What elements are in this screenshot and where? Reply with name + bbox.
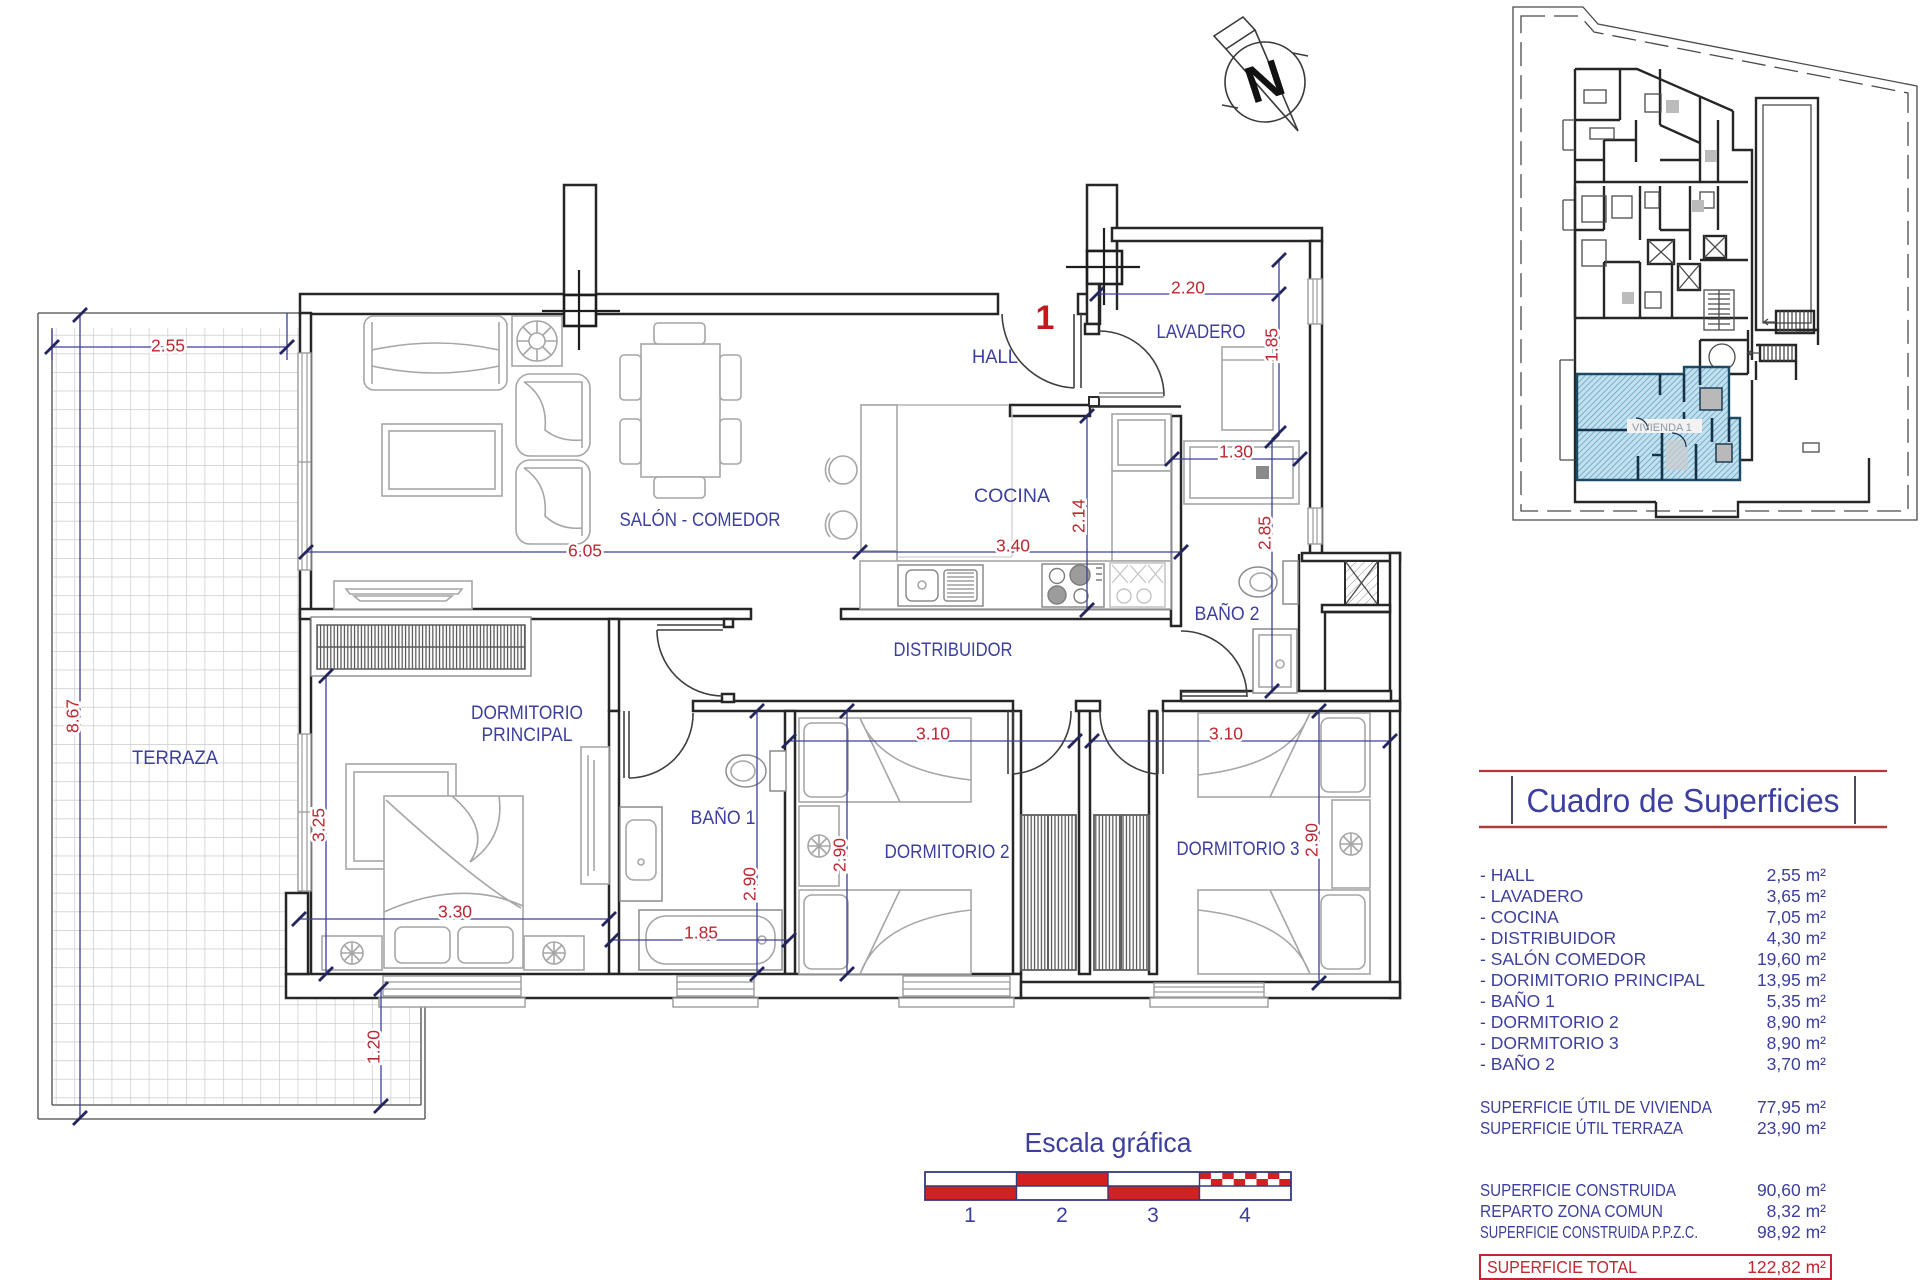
- svg-text:98,92 m²: 98,92 m²: [1757, 1222, 1826, 1242]
- svg-text:Cuadro de Superficies: Cuadro de Superficies: [1527, 782, 1840, 819]
- svg-text:DISTRIBUIDOR: DISTRIBUIDOR: [894, 639, 1013, 661]
- svg-text:3,65 m²: 3,65 m²: [1767, 886, 1826, 906]
- svg-text:DORMITORIO 2: DORMITORIO 2: [885, 841, 1010, 863]
- svg-text:6.05: 6.05: [568, 541, 602, 561]
- svg-text:3.10: 3.10: [916, 724, 950, 744]
- svg-text:2: 2: [1056, 1204, 1068, 1227]
- svg-text:3.25: 3.25: [309, 808, 329, 842]
- svg-text:4,30 m²: 4,30 m²: [1767, 928, 1826, 948]
- svg-text:7,05 m²: 7,05 m²: [1767, 907, 1826, 927]
- svg-text:122,82 m²: 122,82 m²: [1747, 1257, 1826, 1277]
- svg-text:HALL: HALL: [972, 346, 1018, 368]
- svg-text:- DORMITORIO 2: - DORMITORIO 2: [1480, 1012, 1619, 1032]
- svg-text:8,90 m²: 8,90 m²: [1767, 1033, 1826, 1053]
- svg-text:SUPERFICIE CONSTRUIDA P.P.Z.C.: SUPERFICIE CONSTRUIDA P.P.Z.C.: [1480, 1222, 1698, 1242]
- svg-text:2.90: 2.90: [1302, 823, 1322, 857]
- svg-text:2.55: 2.55: [151, 336, 185, 356]
- svg-text:8.67: 8.67: [63, 699, 83, 733]
- svg-text:LAVADERO: LAVADERO: [1157, 321, 1246, 343]
- svg-text:- BAÑO 1: - BAÑO 1: [1480, 990, 1555, 1011]
- svg-text:1.30: 1.30: [1219, 442, 1253, 462]
- svg-text:3: 3: [1147, 1204, 1159, 1227]
- svg-text:COCINA: COCINA: [974, 485, 1050, 507]
- svg-text:- LAVADERO: - LAVADERO: [1480, 886, 1583, 906]
- svg-text:3.10: 3.10: [1209, 724, 1243, 744]
- svg-text:- DORIMITORIO PRINCIPAL: - DORIMITORIO PRINCIPAL: [1480, 970, 1705, 990]
- svg-text:BAÑO 1: BAÑO 1: [691, 805, 756, 829]
- svg-text:19,60 m²: 19,60 m²: [1757, 949, 1826, 969]
- svg-text:SUPERFICIE ÚTIL DE VIVIENDA: SUPERFICIE ÚTIL DE VIVIENDA: [1480, 1096, 1712, 1117]
- svg-text:- DISTRIBUIDOR: - DISTRIBUIDOR: [1480, 928, 1616, 948]
- svg-text:VIVIENDA 1: VIVIENDA 1: [1632, 422, 1692, 434]
- svg-text:DORMITORIO 3: DORMITORIO 3: [1177, 838, 1300, 860]
- svg-text:8,32 m²: 8,32 m²: [1767, 1201, 1826, 1221]
- svg-text:SALÓN - COMEDOR: SALÓN - COMEDOR: [620, 508, 781, 531]
- svg-text:5,35 m²: 5,35 m²: [1767, 991, 1826, 1011]
- svg-text:1: 1: [964, 1204, 976, 1227]
- svg-text:13,95 m²: 13,95 m²: [1757, 970, 1826, 990]
- svg-text:23,90 m²: 23,90 m²: [1757, 1118, 1826, 1138]
- svg-text:SUPERFICIE CONSTRUIDA: SUPERFICIE CONSTRUIDA: [1480, 1180, 1676, 1200]
- svg-text:SUPERFICIE ÚTIL TERRAZA: SUPERFICIE ÚTIL TERRAZA: [1480, 1117, 1683, 1138]
- svg-text:TERRAZA: TERRAZA: [132, 747, 218, 769]
- svg-text:2.85: 2.85: [1255, 516, 1275, 550]
- svg-text:2.90: 2.90: [740, 867, 760, 901]
- svg-text:77,95 m²: 77,95 m²: [1757, 1097, 1826, 1117]
- svg-text:REPARTO ZONA COMUN: REPARTO ZONA COMUN: [1480, 1201, 1663, 1221]
- svg-text:- SALÓN COMEDOR: - SALÓN COMEDOR: [1480, 948, 1646, 969]
- svg-text:3.30: 3.30: [438, 902, 472, 922]
- svg-text:2.20: 2.20: [1171, 278, 1205, 298]
- svg-text:1.85: 1.85: [1262, 328, 1282, 362]
- svg-text:- COCINA: - COCINA: [1480, 907, 1559, 927]
- svg-text:2,55 m²: 2,55 m²: [1767, 865, 1826, 885]
- svg-text:1.85: 1.85: [684, 923, 718, 943]
- svg-text:1: 1: [1036, 299, 1055, 337]
- svg-text:3,70 m²: 3,70 m²: [1767, 1054, 1826, 1074]
- svg-text:90,60 m²: 90,60 m²: [1757, 1180, 1826, 1200]
- svg-text:BAÑO 2: BAÑO 2: [1195, 601, 1260, 625]
- svg-text:4: 4: [1239, 1204, 1251, 1227]
- svg-text:1.20: 1.20: [364, 1030, 384, 1064]
- svg-text:Escala gráfica: Escala gráfica: [1025, 1127, 1192, 1158]
- svg-text:2.14: 2.14: [1069, 499, 1089, 533]
- svg-text:- DORMITORIO 3: - DORMITORIO 3: [1480, 1033, 1619, 1053]
- svg-text:SUPERFICIE TOTAL: SUPERFICIE TOTAL: [1487, 1257, 1637, 1277]
- svg-text:3.40: 3.40: [996, 536, 1030, 556]
- svg-text:- BAÑO 2: - BAÑO 2: [1480, 1053, 1555, 1074]
- svg-text:- HALL: - HALL: [1480, 865, 1535, 885]
- svg-text:8,90 m²: 8,90 m²: [1767, 1012, 1826, 1032]
- svg-text:2.90: 2.90: [830, 838, 850, 872]
- svg-text:PRINCIPAL: PRINCIPAL: [482, 724, 573, 746]
- svg-text:DORMITORIO: DORMITORIO: [471, 702, 583, 724]
